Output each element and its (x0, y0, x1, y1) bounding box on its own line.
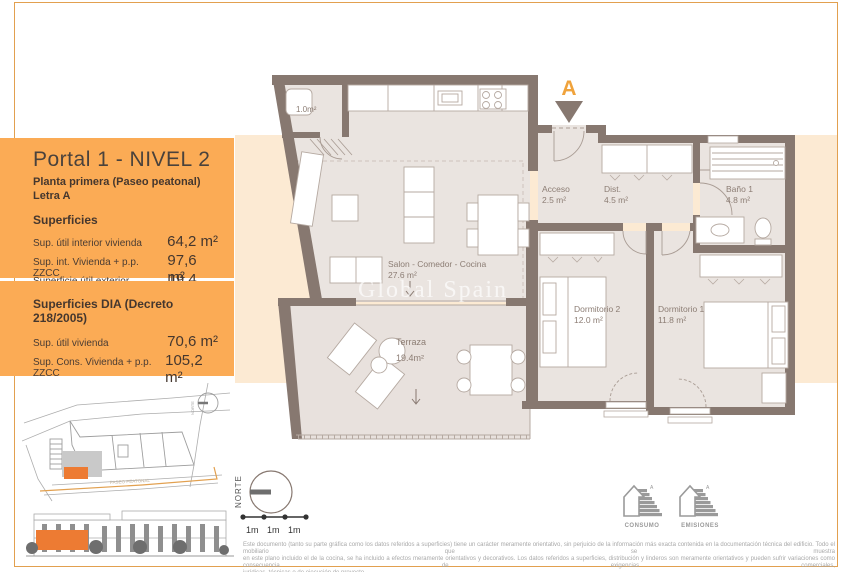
scale-label: 1m (267, 525, 280, 535)
elevation-thumbnail (26, 506, 234, 564)
disclaimer: Este documento (tanto su parte gráfica c… (243, 542, 835, 572)
info-panel-superficies: Portal 1 - NIVEL 2 Planta primera (Paseo… (0, 138, 234, 278)
room-area-acceso: 2.5 m² (542, 195, 566, 205)
consumo-label: CONSUMO (625, 523, 660, 529)
row-value: 70,6 m² (167, 333, 218, 350)
energy-grade: A (650, 485, 654, 491)
scale-bar: 1m 1m 1m (238, 508, 328, 540)
info-panel-superficies-dia: Superficies DIA (Decreto 218/2005) Sup. … (0, 281, 234, 376)
compass-label: NORTE (234, 475, 243, 508)
site-plan-thumbnail: NORTE PASEO PEATONAL (22, 383, 232, 505)
room-label-trastero: 1.0m² (296, 105, 317, 114)
dining-table (478, 195, 518, 255)
table-row: Sup. int. Vivienda + p.p. ZZCC 97,6 m² (33, 252, 218, 271)
terrace-table (470, 345, 512, 395)
row-label: Sup. útil vivienda (33, 338, 109, 349)
room-area-dist: 4.5 m² (604, 195, 628, 205)
room-label-terraza: Terraza (396, 337, 426, 347)
page-title: Portal 1 - NIVEL 2 (33, 148, 218, 172)
floorplan-sheet: Portal 1 - NIVEL 2 Planta primera (Paseo… (0, 0, 850, 572)
table-row: Sup. útil interior vivienda 64,2 m² (33, 233, 218, 252)
scale-label: 1m (246, 525, 259, 535)
unit-letter: A (561, 77, 576, 100)
sofa (404, 167, 434, 243)
consumo-icon: A CONSUMO (624, 485, 662, 529)
room-area-dorm2: 12.0 m² (574, 315, 603, 325)
table-row: Sup. útil vivienda 70,6 m² (33, 333, 218, 352)
row-label: Sup. Cons. Vivienda + p.p. ZZCC (33, 357, 165, 379)
row-value: 64,2 m² (167, 233, 218, 250)
disclaimer-line: Este documento (tanto su parte gráfica c… (243, 542, 835, 556)
table-row: Sup. Cons. Vivienda + p.p. ZZCC 105,2 m² (33, 352, 218, 371)
room-label-dorm1: Dormitorio 1 (658, 304, 705, 314)
elevation-unit-highlight (36, 530, 88, 550)
floor-plan: A Global Spain 1.0m² Salon - Comedor - C… (238, 55, 838, 465)
emisiones-icon: A EMISIONES (680, 485, 719, 529)
energy-icons: A CONSUMO A EMISIONES (620, 480, 730, 536)
kitchen-counter (348, 85, 528, 111)
room-label-acceso: Acceso (542, 184, 570, 194)
room-label-salon: Salon - Comedor - Cocina (388, 259, 487, 269)
energy-grade: A (706, 485, 710, 491)
room-label-dist: Dist. (604, 184, 621, 194)
superficies-heading: Superficies (33, 213, 218, 227)
row-value: 105,2 m² (165, 352, 218, 386)
room-area-bano: 4.8 m² (726, 195, 750, 205)
disclaimer-line: en este plano incluido el de la cocina, … (243, 556, 835, 570)
scale-label: 1m (288, 525, 301, 535)
dresser (762, 373, 786, 403)
room-area-dorm1: 11.8 m² (658, 315, 686, 325)
room-label-bano: Baño 1 (726, 184, 753, 194)
superficies-dia-heading: Superficies DIA (Decreto 218/2005) (33, 297, 218, 325)
site-north-label: NORTE (190, 401, 195, 415)
page-subtitle: Planta primera (Paseo peatonal) Letra A (33, 175, 218, 203)
room-area-salon: 27.6 m² (388, 270, 417, 280)
watermark: Global Spain (358, 277, 508, 303)
entrance-arrow-icon (555, 101, 583, 123)
entrance-marker: A (555, 77, 583, 123)
street-label: PASEO PEATONAL (110, 478, 151, 485)
row-label: Sup. útil interior vivienda (33, 238, 142, 249)
emisiones-label: EMISIONES (681, 523, 719, 529)
room-label-dorm2: Dormitorio 2 (574, 304, 621, 314)
armchair (332, 195, 358, 221)
toilet-icon (755, 218, 771, 238)
room-area-terraza: 19.4m² (396, 353, 424, 363)
site-unit-highlight (64, 467, 88, 479)
